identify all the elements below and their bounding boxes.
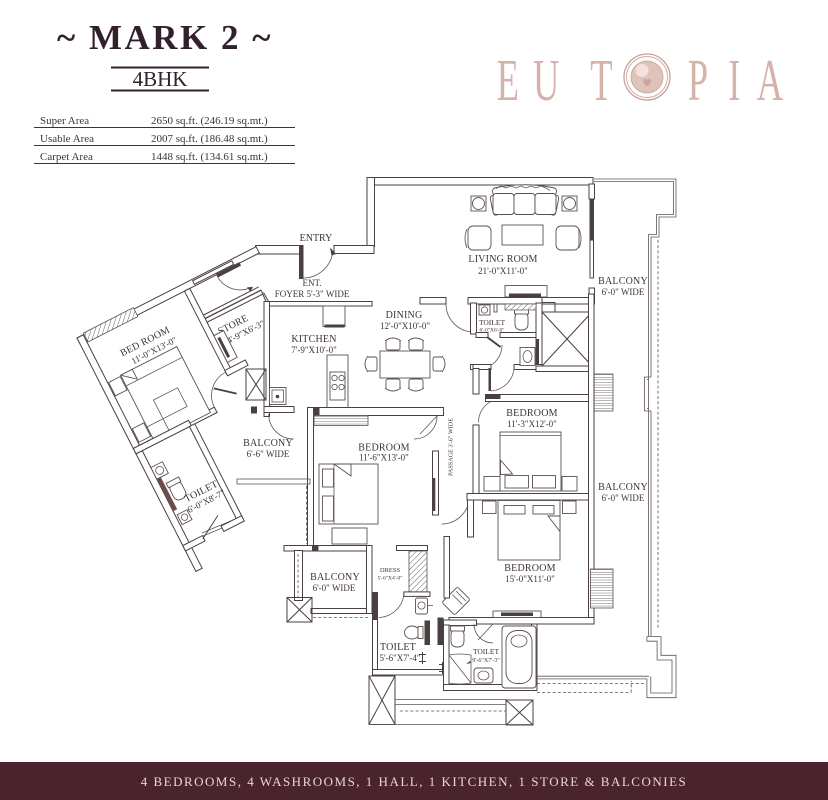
svg-text:11'-6"X13'-0": 11'-6"X13'-0" <box>359 453 409 463</box>
svg-text:TOILET: TOILET <box>479 318 506 327</box>
svg-text:Usable Area: Usable Area <box>40 133 94 145</box>
svg-text:P: P <box>688 47 708 113</box>
svg-text:DINING: DINING <box>386 310 423 321</box>
svg-text:15'-0"X11'-0": 15'-0"X11'-0" <box>505 574 555 584</box>
svg-text:5'-6"X4'-0": 5'-6"X4'-0" <box>377 576 402 582</box>
svg-text:6'-6" WIDE: 6'-6" WIDE <box>247 449 290 459</box>
svg-text:ENTRY: ENTRY <box>300 233 333 244</box>
svg-text:6'-0" WIDE: 6'-0" WIDE <box>602 287 645 297</box>
svg-text:PASSAGE 3'-6" WIDE: PASSAGE 3'-6" WIDE <box>448 418 455 476</box>
svg-text:U: U <box>533 47 559 113</box>
svg-text:KITCHEN: KITCHEN <box>291 334 336 345</box>
svg-text:~ MARK 2 ~: ~ MARK 2 ~ <box>57 18 273 57</box>
svg-text:BALCONY: BALCONY <box>598 482 648 493</box>
svg-text:2650 sq.ft. (246.19 sq.mt.): 2650 sq.ft. (246.19 sq.mt.) <box>151 115 268 127</box>
svg-text:BALCONY: BALCONY <box>243 438 293 449</box>
svg-text:T: T <box>590 47 612 113</box>
svg-text:4 BEDROOMS, 4 WASHROOMS, 1 HAL: 4 BEDROOMS, 4 WASHROOMS, 1 HALL, 1 KITCH… <box>141 774 688 789</box>
svg-text:2007 sq.ft. (186.48 sq.mt.): 2007 sq.ft. (186.48 sq.mt.) <box>151 133 268 145</box>
svg-text:A: A <box>757 47 784 113</box>
svg-text:21'-0"X11'-0": 21'-0"X11'-0" <box>478 266 528 276</box>
svg-text:TOILET: TOILET <box>380 642 416 653</box>
svg-text:FOYER 5'-3" WIDE: FOYER 5'-3" WIDE <box>275 289 350 299</box>
svg-text:4BHK: 4BHK <box>133 67 188 91</box>
svg-text:BALCONY: BALCONY <box>598 276 648 287</box>
svg-text:6'-0" WIDE: 6'-0" WIDE <box>602 493 645 503</box>
svg-text:12'-0"X10'-0": 12'-0"X10'-0" <box>380 321 430 331</box>
svg-text:1448 sq.ft. (134.61 sq.mt.): 1448 sq.ft. (134.61 sq.mt.) <box>151 151 268 163</box>
svg-text:9'-6"X7'-3": 9'-6"X7'-3" <box>472 658 500 664</box>
svg-text:11'-3"X12'-0": 11'-3"X12'-0" <box>507 419 557 429</box>
svg-text:ENT.: ENT. <box>302 278 321 288</box>
svg-text:7'-9"X10'-0": 7'-9"X10'-0" <box>291 345 337 355</box>
svg-text:LIVING ROOM: LIVING ROOM <box>468 254 537 265</box>
svg-text:DRESS: DRESS <box>380 567 401 574</box>
svg-text:6'-0" WIDE: 6'-0" WIDE <box>313 583 356 593</box>
svg-text:Super Area: Super Area <box>40 115 89 127</box>
svg-text:E: E <box>497 47 519 113</box>
svg-text:BEDROOM: BEDROOM <box>506 408 557 419</box>
svg-text:BEDROOM: BEDROOM <box>504 563 555 574</box>
svg-text:Carpet Area: Carpet Area <box>40 151 93 163</box>
svg-text:6'-0"X6'-0": 6'-0"X6'-0" <box>479 328 504 334</box>
svg-text:BALCONY: BALCONY <box>310 572 360 583</box>
svg-text:I: I <box>728 47 740 113</box>
svg-text:TOILET: TOILET <box>473 647 500 656</box>
svg-text:5'-6"X7'-4": 5'-6"X7'-4" <box>379 653 420 663</box>
